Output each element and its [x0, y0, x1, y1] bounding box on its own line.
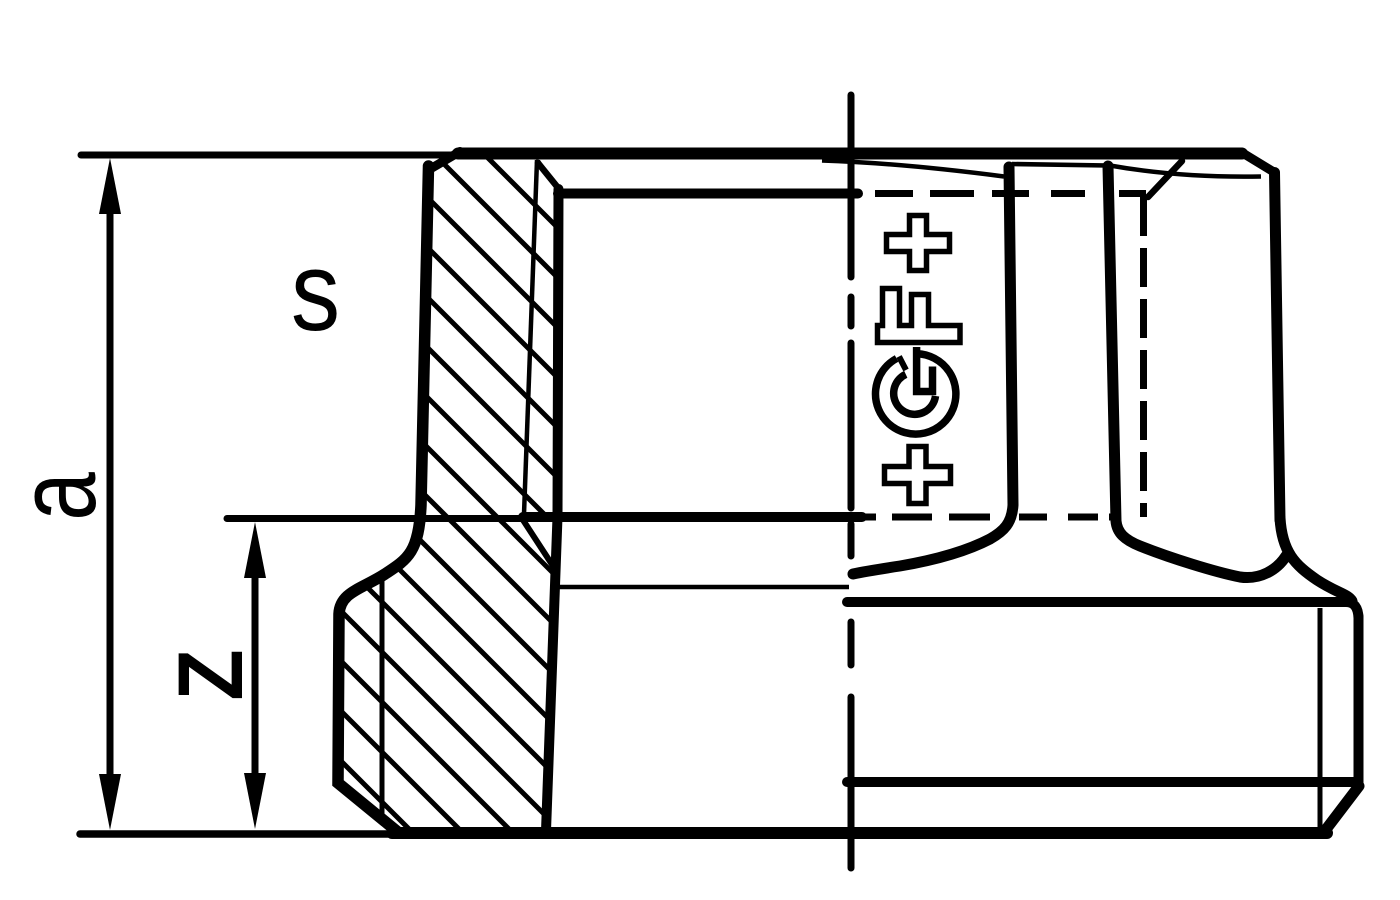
- svg-text:a: a: [0, 472, 120, 521]
- svg-text:s: s: [291, 230, 340, 354]
- svg-text:Z: Z: [159, 649, 262, 700]
